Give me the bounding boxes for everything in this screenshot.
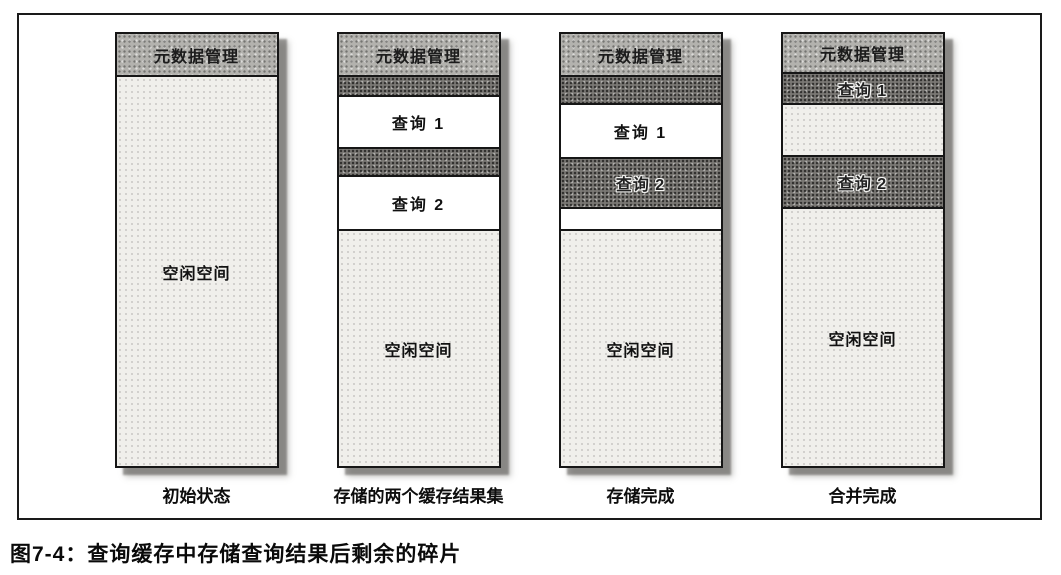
segment-white-spacer [561,207,721,229]
segment-label: 查询 2 [838,170,887,194]
segment-label: 元数据管理 [598,43,683,67]
segment-label: 元数据管理 [820,41,905,65]
segment-header: 元数据管理 [117,34,277,75]
stage-label: 存储的两个缓存结果集 [334,482,504,507]
segment-dark: 查询 2 [561,157,721,207]
page: { "figure": { "caption": "图7-4：查询缓存中存储查询… [0,0,1061,575]
segment-dark: 查询 1 [783,72,943,103]
memory-stack: 元数据管理空闲空间 [115,32,279,468]
memory-column: 元数据管理查询 1查询 2空闲空间存储的两个缓存结果集 [339,32,499,507]
segment-free-spacer [783,103,943,155]
segment-label: 元数据管理 [376,43,461,67]
segment-label: 元数据管理 [154,43,239,67]
figure-frame: 元数据管理空闲空间初始状态元数据管理查询 1查询 2空闲空间存储的两个缓存结果集… [17,13,1042,520]
segment-free: 空闲空间 [561,229,721,466]
segment-free: 空闲空间 [339,229,499,466]
segment-label: 空闲空间 [828,326,896,350]
memory-column: 元数据管理空闲空间初始状态 [117,32,277,507]
stage-label: 合并完成 [829,482,897,507]
segment-label: 查询 2 [392,191,445,215]
memory-stack: 元数据管理查询 1查询 2空闲空间 [337,32,501,468]
segment-label: 查询 1 [614,119,667,143]
segment-header: 元数据管理 [339,34,499,75]
segment-label: 查询 2 [616,171,665,195]
segment-label: 查询 1 [392,110,445,134]
segment-dark-spacer [339,147,499,175]
segment-label: 空闲空间 [162,260,230,284]
segment-label: 空闲空间 [384,337,452,361]
memory-column: 元数据管理查询 1查询 2空闲空间存储完成 [561,32,721,507]
stage-label: 存储完成 [607,482,675,507]
segment-label: 空闲空间 [606,337,674,361]
segment-dark-spacer [339,75,499,95]
segment-header: 元数据管理 [783,34,943,72]
figure-caption: 图7-4：查询缓存中存储查询结果后剩余的碎片 [10,538,461,568]
segment-dark: 查询 2 [783,155,943,207]
memory-stack: 元数据管理查询 1查询 2空闲空间 [781,32,945,468]
segment-free: 空闲空间 [117,75,277,466]
segment-free: 空闲空间 [783,207,943,466]
memory-column: 元数据管理查询 1查询 2空闲空间合并完成 [783,32,943,507]
memory-stack: 元数据管理查询 1查询 2空闲空间 [559,32,723,468]
segment-dark-spacer [561,75,721,103]
segment-white: 查询 2 [339,175,499,229]
segment-header: 元数据管理 [561,34,721,75]
segment-label: 查询 1 [838,77,887,101]
stage-label: 初始状态 [163,482,231,507]
segment-white: 查询 1 [339,95,499,147]
segment-white: 查询 1 [561,103,721,157]
